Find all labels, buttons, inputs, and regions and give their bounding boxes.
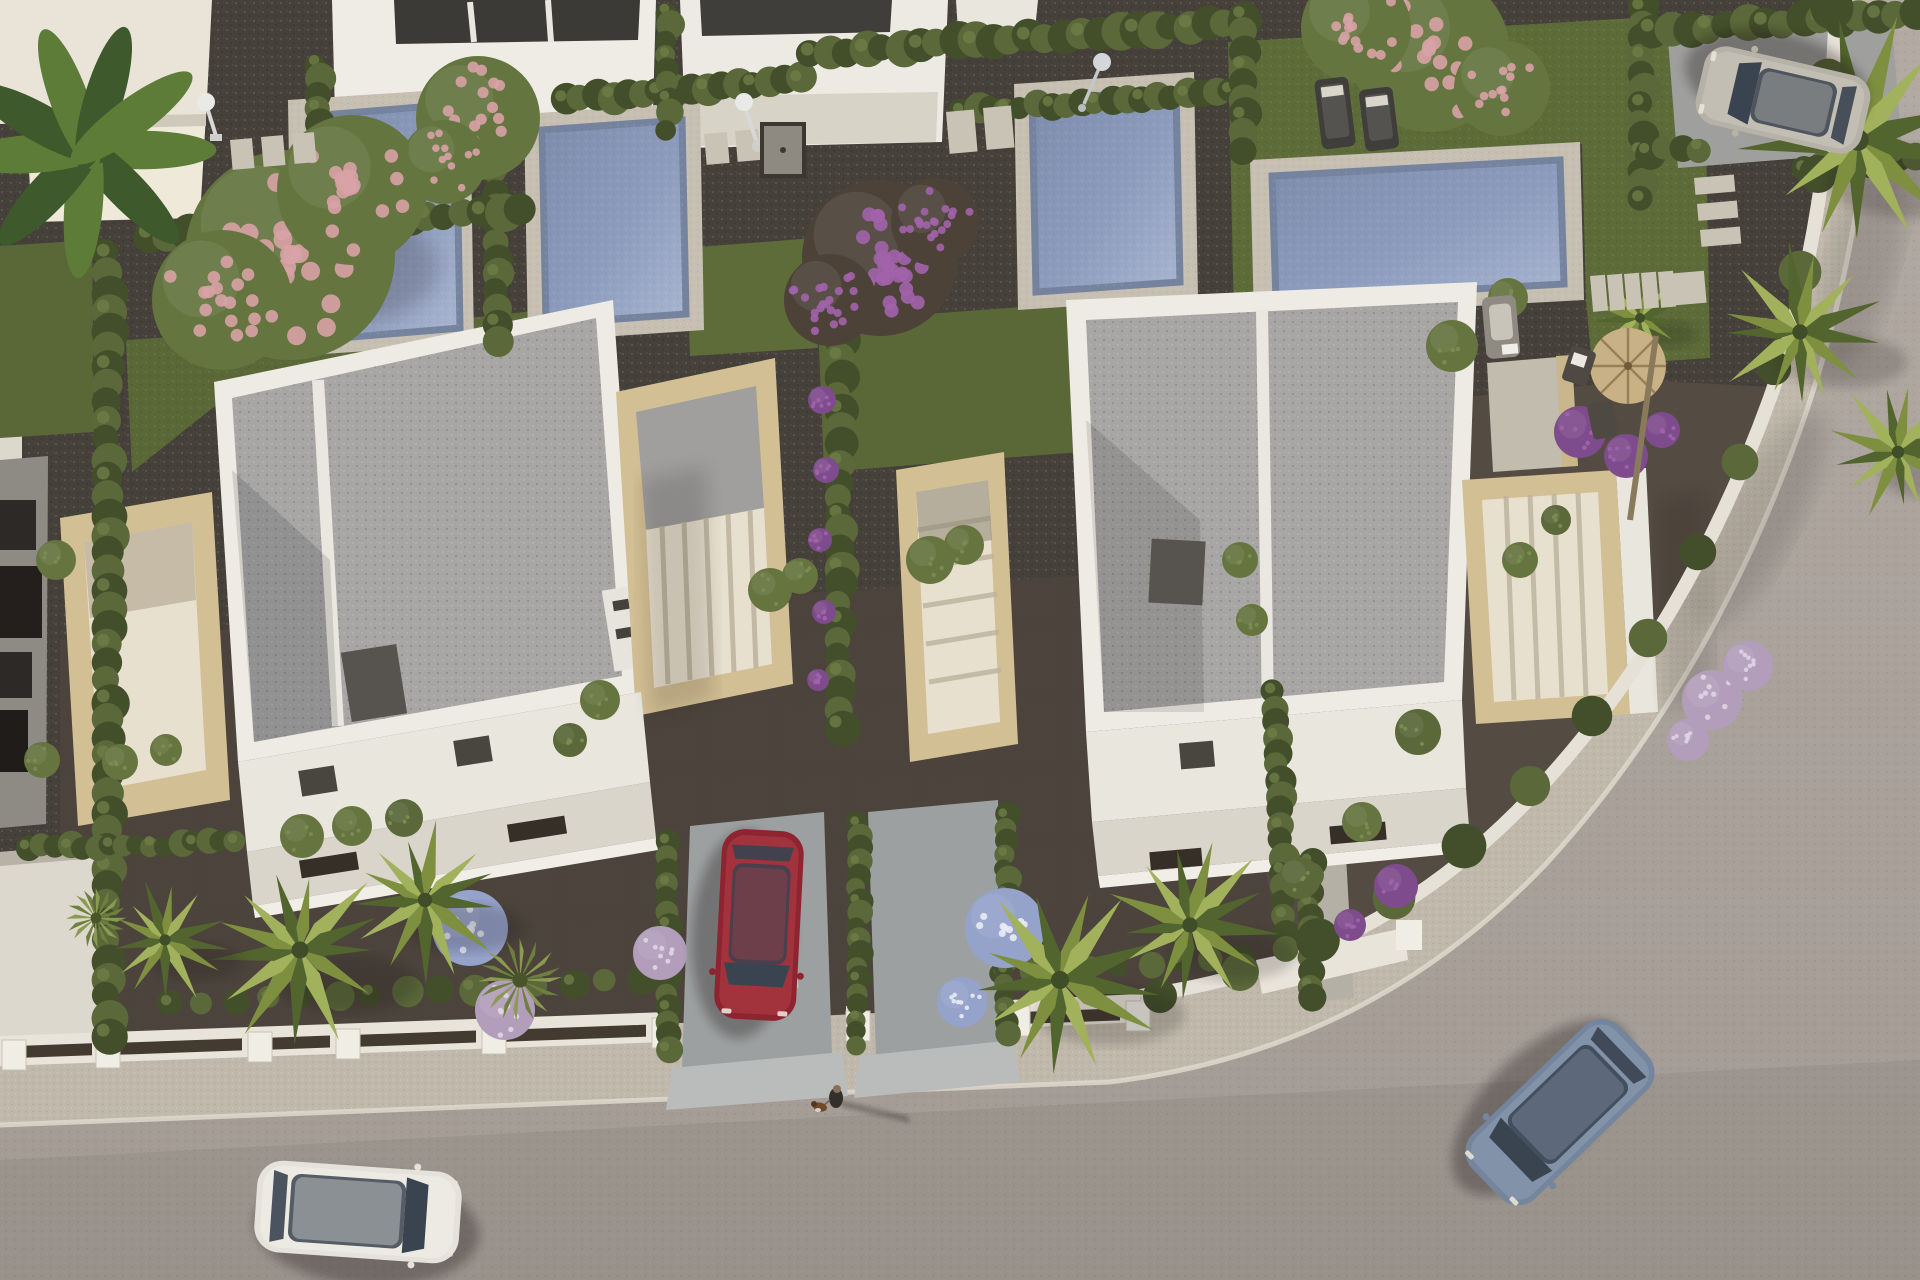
lilac-ball-bush-flower: [659, 946, 664, 951]
pink-blossom-tree-flower: [1499, 67, 1508, 76]
pink-blossom-tree-flower: [1331, 21, 1341, 31]
green-bush-flower: [292, 848, 296, 852]
pink-blossom-tree-flower: [225, 315, 238, 328]
hedge-highlight: [186, 835, 196, 845]
green-bush-flower: [1527, 551, 1531, 555]
purple-flower-cluster-flower: [1389, 881, 1393, 885]
roof-highlight: [291, 1177, 402, 1246]
green-bush-flower: [1518, 555, 1522, 559]
lilac-ball-bush-flower: [1739, 649, 1744, 654]
palm-crown: [291, 941, 308, 958]
mullion: [548, 0, 551, 42]
lilac-ball-bush-flower: [1711, 692, 1716, 697]
pink-blossom-tree-flower: [1433, 55, 1447, 69]
wall-pier: [2, 1040, 26, 1070]
green-bush-flower: [1364, 822, 1368, 826]
hedge-bush: [425, 975, 453, 1003]
green-bush-flower: [1365, 826, 1369, 830]
pink-blossom-tree-flower: [472, 148, 480, 156]
hedge-highlight: [1177, 86, 1187, 96]
green-bush-flower: [1450, 348, 1455, 353]
green-bush-flower: [123, 766, 127, 770]
hedge-highlight: [1132, 89, 1142, 99]
green-bush-hl: [910, 540, 936, 566]
stepping-stone: [1641, 272, 1659, 309]
purple-flower-cluster-flower: [1671, 436, 1675, 440]
purple-bougainvillea-tree-flower: [835, 287, 843, 295]
purple-flower-cluster-hl: [1558, 410, 1587, 439]
headlight: [452, 1181, 458, 1191]
stepping-stone: [1700, 227, 1741, 247]
blue-hydrangea-flower: [952, 993, 957, 998]
green-bush-flower: [1437, 348, 1442, 353]
hedge-bush: [593, 969, 616, 992]
purple-bougainvillea-tree-flower: [941, 205, 949, 213]
hedge-highlight: [472, 201, 485, 214]
pink-blossom-tree-flower: [376, 204, 390, 218]
hedge-highlight: [1233, 56, 1244, 67]
purple-flower-cluster-flower: [819, 404, 823, 408]
hedge-highlight: [1269, 773, 1279, 783]
green-bush-flower: [1227, 555, 1231, 559]
roof-highlight: [731, 867, 788, 962]
pink-blossom-tree-flower: [1467, 71, 1476, 80]
pink-blossom-tree-flower: [208, 271, 221, 284]
hedge-highlight: [998, 1002, 1007, 1011]
lilac-ball-bush-flower: [1698, 693, 1703, 698]
pink-blossom-tree-flower: [231, 278, 244, 291]
villa2-roof-divider: [1262, 310, 1268, 718]
pink-blossom-tree-flower: [396, 199, 410, 213]
green-bush-flower: [940, 566, 944, 570]
purple-flower-cluster-flower: [1393, 886, 1397, 890]
purple-flower-cluster-flower: [811, 404, 815, 408]
purple-flower-cluster-flower: [824, 531, 828, 535]
pink-blossom-tree-flower: [210, 282, 223, 295]
pink-blossom-tree-flower: [1501, 108, 1510, 117]
purple-bougainvillea-tree-flower: [810, 314, 818, 322]
hedge-highlight: [1639, 143, 1649, 153]
green-bush-flower: [1517, 559, 1521, 563]
stepping-stone: [292, 132, 317, 164]
green-bush-flower: [580, 738, 584, 742]
hedge-bush: [1229, 137, 1257, 165]
stepping-stone: [1607, 274, 1625, 311]
hedge-highlight: [660, 834, 670, 844]
green-bush-flower: [389, 811, 393, 815]
green-bush-flower: [406, 815, 410, 819]
purple-bougainvillea-tree-flower: [801, 293, 809, 301]
hedge-highlight: [1043, 96, 1053, 106]
purple-flower-cluster-flower: [812, 534, 816, 538]
pink-blossom-tree-flower: [456, 76, 467, 87]
green-bush-flower: [955, 557, 959, 561]
purple-bougainvillea-tree-flower: [847, 272, 855, 280]
hedge-highlight: [1632, 46, 1643, 57]
pink-blossom-tree-flower: [1488, 90, 1497, 99]
pink-blossom-tree-flower: [1353, 43, 1363, 53]
green-bush-flower: [596, 714, 600, 718]
hedge-highlight: [790, 70, 801, 81]
pink-blossom-tree-flower: [336, 185, 350, 199]
purple-flower-cluster-flower: [1626, 446, 1630, 450]
hedge-highlight: [1867, 5, 1880, 18]
purple-flower-cluster-flower: [1625, 465, 1629, 469]
purple-bougainvillea-tree-flower: [914, 216, 922, 224]
pink-blossom-tree-flower: [493, 113, 504, 124]
purple-flower-cluster-flower: [1671, 426, 1675, 430]
purple-bougainvillea-tree-flower: [856, 230, 870, 244]
green-bush-flower: [1300, 877, 1304, 881]
green-bush-flower: [929, 556, 933, 560]
pink-blossom-tree-flower: [427, 132, 435, 140]
pink-blossom-tree-flower: [390, 172, 404, 186]
purple-flower-cluster-flower: [1352, 925, 1356, 929]
hedge-highlight: [850, 855, 859, 864]
green-bush-flower: [157, 752, 161, 756]
lilac-ball-bush-flower: [1706, 684, 1711, 689]
green-bush-flower: [1238, 618, 1242, 622]
hedge-highlight: [850, 816, 859, 825]
purple-bougainvillea-tree-flower: [839, 317, 847, 325]
purple-bougainvillea-tree-flower: [906, 225, 914, 233]
green-bush-flower: [1293, 888, 1297, 892]
lilac-ball-bush-flower: [498, 1032, 503, 1037]
pink-blossom-tree-flower: [193, 324, 206, 337]
wall-pier: [248, 1032, 272, 1062]
hedge-bush: [483, 326, 514, 357]
scene-canvas: [0, 0, 1920, 1280]
green-bush-hl: [283, 817, 307, 841]
green-bush-flower: [932, 573, 936, 577]
lilac-ball-bush-flower: [1743, 653, 1748, 658]
green-bush-flower: [1248, 554, 1252, 558]
window: [0, 710, 28, 772]
green-bush-flower: [597, 702, 601, 706]
green-bush-flower: [1455, 347, 1460, 352]
hedge-bush: [655, 120, 676, 141]
lilac-ball-bush-flower: [1705, 715, 1710, 720]
hedge-highlight: [830, 716, 842, 728]
pool-mid-water-tex: [542, 120, 686, 324]
green-bush-flower: [388, 821, 392, 825]
lilac-ball-bush-flower: [1748, 664, 1753, 669]
stepping-stone: [983, 106, 1015, 150]
purple-bougainvillea-tree-flower: [943, 220, 951, 228]
hedge-highlight: [97, 578, 110, 591]
hedge-bush: [825, 711, 861, 747]
pink-blossom-tree-flower: [326, 224, 340, 238]
hedge-highlight: [1267, 728, 1277, 738]
neighbour-courtyard-3: [700, 0, 892, 36]
green-bush-flower: [589, 694, 593, 698]
blue-hydrangea-flower: [976, 922, 983, 929]
hedge-highlight: [309, 99, 319, 109]
purple-bougainvillea-tree-flower: [923, 221, 931, 229]
pink-blossom-tree-flower: [248, 313, 261, 326]
lilac-ball-bush-flower: [669, 951, 674, 956]
purple-flower-cluster-flower: [815, 471, 819, 475]
pink-blossom-tree-flower: [317, 318, 336, 337]
pink-blossom-tree-flower: [327, 195, 341, 209]
purple-bougainvillea-tree-flower: [966, 208, 974, 216]
green-bush-flower: [161, 744, 165, 748]
hedge-bush: [995, 1021, 1021, 1047]
green-bush-flower: [1420, 742, 1424, 746]
hedge-highlight: [1233, 6, 1244, 17]
purple-bougainvillea-tree-flower: [880, 271, 894, 285]
green-bush-flower: [928, 562, 932, 566]
purple-bougainvillea-tree-flower: [887, 250, 901, 264]
green-bush-flower: [1554, 513, 1558, 517]
green-bush-hl: [583, 683, 605, 705]
purple-bougainvillea-tree-flower: [850, 303, 858, 311]
pink-blossom-tree-flower: [347, 243, 361, 257]
green-bush-hl: [39, 543, 61, 565]
pink-blossom-tree-flower: [1422, 39, 1436, 53]
skylight: [453, 735, 493, 766]
purple-flower-cluster-flower: [827, 402, 831, 406]
palm-crown: [159, 934, 170, 945]
lilac-ball-bush-flower: [653, 945, 658, 950]
hedge-highlight: [855, 39, 868, 52]
hedge-highlight: [1697, 15, 1710, 28]
pink-blossom-tree-flower: [280, 245, 299, 264]
pink-blossom-tree-flower: [458, 184, 466, 192]
hedge-highlight: [97, 801, 110, 814]
pink-blossom-tree-flower: [265, 310, 278, 323]
hedge-highlight: [1125, 19, 1138, 32]
hedge-highlight: [97, 690, 110, 703]
green-bush-flower: [1360, 835, 1364, 839]
pink-blossom-tree-flower: [221, 256, 234, 269]
boundary-hedge-bush: [1572, 696, 1613, 737]
purple-flower-cluster-flower: [1573, 427, 1578, 432]
pink-blossom-tree-flower: [1367, 49, 1377, 59]
pink-blossom-tree-flower: [1525, 63, 1534, 72]
green-bush-hl: [1430, 324, 1459, 353]
green-bush-flower: [1306, 871, 1310, 875]
purple-bougainvillea-tree-flower: [911, 295, 925, 309]
hedge-highlight: [1017, 27, 1030, 40]
purple-bougainvillea-tree-flower: [849, 287, 857, 295]
green-bush-flower: [1442, 360, 1447, 365]
purple-flower-cluster-flower: [1565, 412, 1570, 417]
lilac-ball-bush-flower: [1744, 677, 1749, 682]
pink-blossom-tree-flower: [287, 326, 306, 345]
stepping-stone: [1697, 201, 1738, 221]
purple-flower-cluster-flower: [823, 475, 827, 479]
boundary-hedge-bush: [1442, 824, 1487, 869]
stepping-stone: [1666, 271, 1707, 306]
green-bush-flower: [113, 761, 117, 765]
hedge-highlight: [1275, 907, 1285, 917]
purple-flower-cluster-flower: [817, 546, 821, 550]
green-bush-flower: [168, 743, 172, 747]
green-bush-flower: [1399, 724, 1403, 728]
green-bush-flower: [309, 832, 313, 836]
pink-blossom-tree-flower: [345, 170, 359, 184]
stepping-stone: [1694, 175, 1735, 195]
pink-blossom-tree-flower: [385, 149, 399, 163]
purple-flower-cluster-flower: [816, 673, 820, 677]
hedge-highlight: [850, 933, 859, 942]
palm-crown: [1635, 313, 1645, 323]
stepping-stone: [1624, 273, 1642, 310]
purple-flower-cluster-flower: [822, 610, 826, 614]
hedge-highlight: [487, 264, 498, 275]
hedge-highlight: [97, 634, 110, 647]
hedge-highlight: [998, 847, 1007, 856]
purple-bougainvillea-tree-flower: [898, 203, 906, 211]
green-bush-hl: [1345, 805, 1367, 827]
hedge-highlight: [97, 411, 110, 424]
purple-flower-cluster-flower: [819, 464, 823, 468]
green-bush-flower: [566, 741, 570, 745]
green-bush-hl: [152, 736, 170, 754]
hedge-highlight: [97, 244, 110, 257]
purple-flower-cluster-flower: [1612, 458, 1616, 462]
pink-blossom-tree-flower: [435, 130, 443, 138]
pink-blossom-tree-flower: [443, 105, 454, 116]
pink-blossom-tree-flower: [1506, 72, 1515, 81]
purple-flower-cluster-flower: [816, 398, 820, 402]
pink-blossom-tree-flower: [199, 304, 212, 317]
stepping-stone: [230, 138, 255, 170]
pink-blossom-tree-flower: [215, 294, 228, 307]
green-bush-flower: [357, 829, 361, 833]
purple-flower-cluster-flower: [1661, 430, 1665, 434]
hedge-highlight: [1271, 817, 1281, 827]
lilac-ball-bush-flower: [1675, 734, 1679, 738]
palm-crown: [1182, 917, 1197, 932]
purple-bougainvillea-tree-flower: [921, 208, 929, 216]
boundary-hedge-bush: [1680, 534, 1716, 570]
green-bush-flower: [57, 556, 61, 560]
stepping-stone: [704, 132, 730, 165]
blue-hydrangea-flower: [1000, 923, 1007, 930]
hedge-highlight: [97, 300, 110, 313]
skylight: [298, 765, 338, 796]
hedge-bush: [656, 1036, 683, 1063]
blue-hydrangea-flower: [1010, 934, 1017, 941]
purple-flower-cluster-flower: [1582, 445, 1587, 450]
mullion: [470, 2, 474, 42]
pink-blossom-tree-flower: [164, 270, 177, 283]
green-bush-flower: [54, 560, 58, 564]
green-bush-flower: [1558, 524, 1562, 528]
pink-blossom-tree-flower: [494, 80, 505, 91]
hedge-highlight: [555, 90, 566, 101]
purple-flower-cluster-flower: [808, 538, 812, 542]
green-bush-flower: [350, 832, 354, 836]
blue-hydrangea-flower: [965, 1005, 970, 1010]
pink-blossom-tree-flower: [1409, 24, 1423, 38]
hedge-highlight: [660, 1000, 670, 1010]
boundary-hedge-bush: [1629, 619, 1668, 658]
hedge-highlight: [850, 972, 859, 981]
green-bush-flower: [1255, 623, 1259, 627]
purple-flower-cluster-flower: [1585, 441, 1590, 446]
hedge-highlight: [998, 808, 1007, 817]
purple-bougainvillea-tree-flower: [875, 241, 889, 255]
green-bush-flower: [798, 574, 802, 578]
blue-hydrangea-flower: [980, 913, 987, 920]
blue-hydrangea-flower: [970, 993, 975, 998]
purple-bougainvillea-tree-flower: [833, 309, 841, 317]
hedge-highlight: [20, 840, 30, 850]
green-bush-flower: [286, 830, 290, 834]
headlight: [448, 1246, 454, 1256]
green-bush-flower: [767, 577, 771, 581]
hedge-highlight: [1691, 139, 1701, 149]
lilac-ball-bush-flower: [665, 959, 670, 964]
pink-blossom-tree-flower: [1475, 99, 1484, 108]
hedge-highlight: [660, 1042, 670, 1052]
green-bush-flower: [760, 573, 764, 577]
purple-flower-cluster-hl: [1377, 867, 1401, 891]
stepping-stone: [1590, 275, 1608, 312]
green-bush-flower: [1414, 728, 1418, 732]
window: [0, 652, 32, 698]
hedge-highlight: [463, 979, 473, 989]
hedge-bush: [504, 193, 536, 225]
pink-blossom-tree-flower: [477, 87, 488, 98]
hedge-highlight: [801, 43, 814, 56]
purple-bougainvillea-tree-flower: [938, 226, 946, 234]
purple-flower-cluster-flower: [1608, 455, 1612, 459]
lilac-ball-bush-flower: [1701, 674, 1706, 679]
purple-flower-cluster-flower: [1615, 446, 1619, 450]
person-head: [833, 1085, 841, 1093]
lilac-ball-bush-flower: [1703, 690, 1708, 695]
palm-crown: [1892, 446, 1905, 459]
green-bush-flower: [43, 551, 47, 555]
villa2-chimney: [1148, 539, 1205, 606]
pink-blossom-tree-flower: [476, 65, 487, 76]
green-bush-flower: [774, 602, 778, 606]
pink-blossom-tree-flower: [1347, 21, 1357, 31]
hedge-highlight: [1233, 107, 1244, 118]
villa1-chimney: [341, 644, 407, 722]
purple-bougainvillea-tree-flower: [819, 300, 827, 308]
hedge-highlight: [144, 836, 154, 846]
hedge-highlight: [660, 917, 670, 927]
green-bush-flower: [109, 762, 113, 766]
purple-flower-cluster-flower: [825, 467, 829, 471]
green-bush-flower: [762, 588, 766, 592]
pink-blossom-tree-flower: [496, 126, 507, 137]
pink-blossom-tree-flower: [1507, 63, 1516, 72]
palm-crown: [1051, 971, 1069, 989]
palm-crown: [1792, 324, 1807, 339]
purple-bougainvillea-tree-flower: [891, 269, 905, 283]
pink-blossom-tree-flower: [329, 166, 343, 180]
blue-hydrangea-flower: [956, 1000, 961, 1005]
pink-blossom-tree-flower: [1496, 86, 1505, 95]
sofa-cushion: [1488, 303, 1513, 341]
purple-flower-cluster-flower: [816, 679, 820, 683]
yucca-center: [91, 913, 102, 924]
green-bush-hl: [947, 528, 969, 550]
hedge-highlight: [1071, 23, 1084, 36]
pink-blossom-tree-flower: [1387, 37, 1397, 47]
green-bush-flower: [33, 759, 37, 763]
green-bush-flower: [26, 759, 30, 763]
hedge-highlight: [228, 834, 238, 844]
hedge-highlight: [743, 74, 754, 85]
purple-bougainvillea-tree-flower: [885, 304, 899, 318]
